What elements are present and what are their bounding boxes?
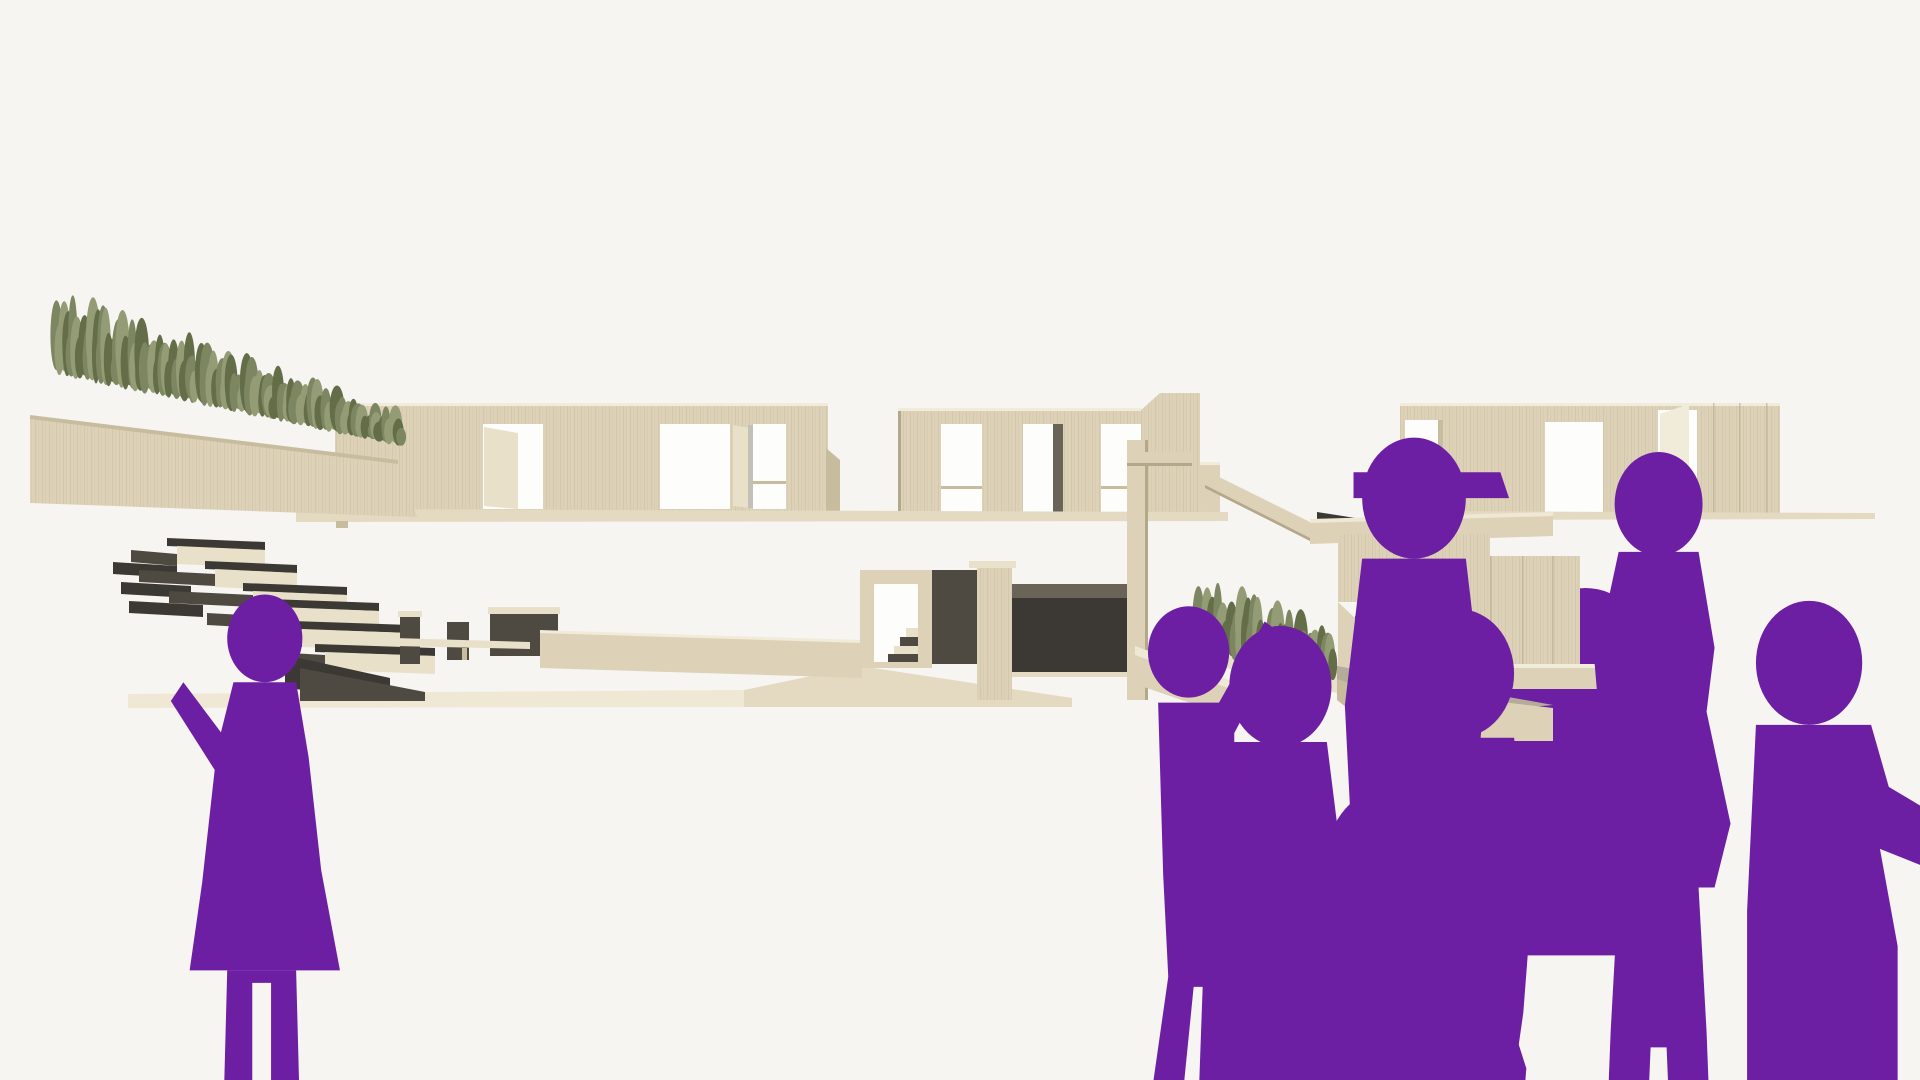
section-render-svg [0,0,1920,1080]
door-gap [748,425,753,508]
open-door-panel [733,425,750,508]
dark-door-leaf [1053,424,1063,513]
dark-recess-wall [932,570,977,664]
middle-pavilion-roof-edge [898,408,1141,411]
panel-joint [1766,403,1768,513]
left-pavilion [335,403,840,512]
portal-step [906,628,918,637]
panel-joint [1739,403,1741,513]
left-pavilion-roof-edge [335,403,828,406]
slab-support [336,521,348,528]
grass-tuft [396,428,406,446]
door-opening [660,424,730,509]
booth-top [488,607,560,614]
booth-top [398,611,422,617]
door-opening [941,424,982,513]
open-door-panel [484,427,518,509]
portal-step [888,654,918,662]
handrail [753,481,786,484]
service-core-wood [977,565,1012,700]
architectural-section-canvas: Cross-section render of a two-level timb… [0,0,1920,1080]
step-volume-edge [1200,462,1220,465]
panel-joint [1552,556,1554,668]
portal-frame [860,570,932,668]
handrail [941,486,982,489]
door-opening [1545,422,1603,514]
panel-joint [1713,403,1715,513]
door-opening [753,424,786,509]
portal-step [894,646,918,654]
table-leg [462,648,467,660]
dark-interior-upper-band [1012,584,1127,598]
portal-step [900,637,918,646]
service-core-cap [969,561,1016,568]
panel-joint [1522,556,1524,668]
right-pavilion-roof-edge [1400,403,1780,406]
middle-pavilion-left-edge [898,408,901,517]
beam-underedge [1127,463,1192,466]
door-opening [1023,424,1053,513]
